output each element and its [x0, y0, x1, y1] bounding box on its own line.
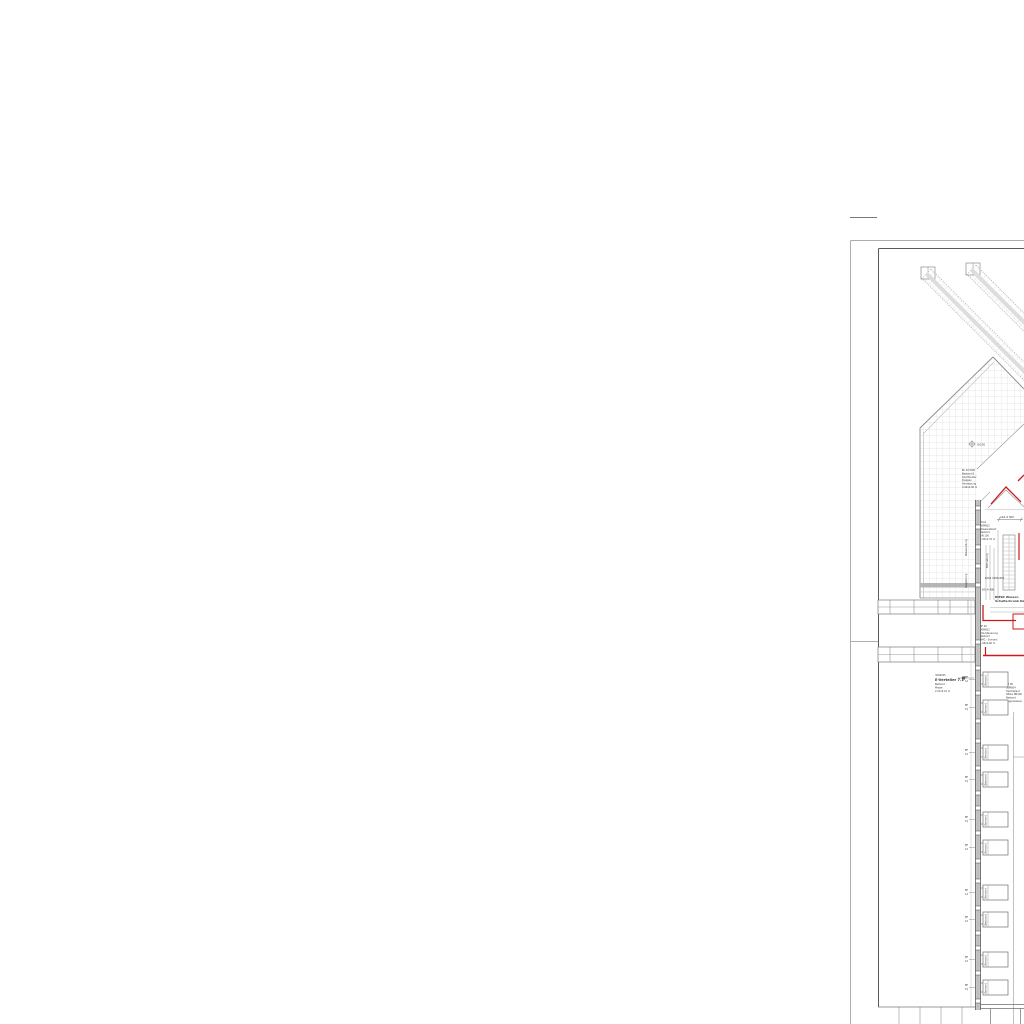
- svg-text:Schaltschrank Dach: Schaltschrank Dach: [995, 599, 1024, 603]
- level-label: 65.4 NN: [982, 588, 994, 592]
- svg-text:12: 12: [965, 820, 969, 823]
- svg-text:(Bestand): (Bestand): [985, 914, 988, 926]
- svg-text:12: 12: [965, 988, 969, 991]
- svg-text:1.94x2.76 m: 1.94x2.76 m: [980, 538, 996, 541]
- svg-text:(Fenster): (Fenster): [985, 955, 988, 966]
- svg-text:12: 12: [965, 920, 969, 923]
- level-dimension: +64.4 NN: [997, 515, 1023, 522]
- svg-text:12: 12: [965, 893, 969, 896]
- drawing-frame: [851, 241, 1024, 1024]
- central-roof-outlines: [977, 475, 1024, 510]
- window-symbol: (Fenster) BF 12: [965, 885, 1008, 900]
- bottom-wall-band: [878, 1007, 975, 1024]
- drawing-canvas: G026 BL 02 W06 Bestand 8 Dachfenster Kla…: [0, 0, 1024, 1024]
- riser-label-left-1: Wasserleitung: [965, 539, 968, 556]
- svg-text:BF: BF: [965, 776, 969, 779]
- wing-wall-lower: [878, 647, 975, 662]
- svg-text:12: 12: [965, 708, 969, 711]
- svg-text:3006025: 3006025: [935, 674, 946, 677]
- eave-band: [920, 583, 977, 588]
- riser-label-left-2: Steigleitung: [965, 573, 968, 588]
- svg-text:BF: BF: [965, 984, 969, 987]
- window-symbol: (Fenster) BF 12: [965, 700, 1008, 715]
- svg-text:(Fenster): (Fenster): [985, 703, 988, 714]
- svg-text:(Fenster): (Fenster): [985, 843, 988, 854]
- equipment-note: PCA1 30M602 Wasserablauf Bestand DN 100 …: [980, 521, 996, 541]
- red-cabinet-outline: [1013, 614, 1024, 629]
- svg-text:12: 12: [965, 680, 969, 683]
- red-cable-route: [983, 605, 1024, 629]
- e-verteiler-note: 3006025 E-Verteiler 7.1 Bestand Masse 2.…: [935, 674, 974, 693]
- window-symbol: (Fenster) BF 12: [965, 812, 1008, 827]
- svg-text:BF: BF: [965, 704, 969, 707]
- svg-text:(Bestand): (Bestand): [985, 774, 988, 786]
- svg-text:(Fenster): (Fenster): [985, 675, 988, 686]
- svg-text:12: 12: [965, 780, 969, 783]
- level-dim-label: +64.4 NN: [999, 515, 1014, 519]
- facade-reference-line: [1014, 712, 1024, 1024]
- svg-text:(Fenster): (Fenster): [985, 888, 988, 899]
- bottom-east-structure: [981, 1005, 1024, 1024]
- svg-text:(Fenster): (Fenster): [985, 983, 988, 994]
- riser-label-right: BSH Leitung: [986, 553, 989, 568]
- survey-point-label: G026: [977, 443, 985, 447]
- svg-text:12: 12: [965, 960, 969, 963]
- svg-text:0.94x2.00 m: 0.94x2.00 m: [962, 486, 978, 489]
- bmsr-note: BMSR Wasser- Schaltschrank Dach: [995, 595, 1024, 603]
- window-symbol: (Fenster) BF 12: [965, 980, 1008, 995]
- svg-text:(Fenster): (Fenster): [985, 748, 988, 759]
- floor-plan-svg: G026 BL 02 W06 Bestand 8 Dachfenster Kla…: [0, 0, 1024, 1024]
- red-junction-line: [983, 647, 1024, 656]
- window-symbol: (Fenster) BF 12: [965, 952, 1008, 967]
- duct-label: BA04 1950x650: [985, 577, 1005, 580]
- svg-text:1.96x0.60 m: 1.96x0.60 m: [980, 642, 996, 645]
- svg-text:E-Verteiler 7.1: E-Verteiler 7.1: [935, 678, 964, 682]
- svg-text:12: 12: [965, 753, 969, 756]
- window-row: (Fenster) BF 12 (Fenster) BF 12 (Fenster…: [965, 672, 1008, 995]
- svg-text:BF: BF: [965, 916, 969, 919]
- lka-note: BF 40 30M602 LKA-Steuerung Bestand BMC -…: [980, 625, 998, 645]
- svg-text:Regenwasser: Regenwasser: [1006, 700, 1022, 703]
- svg-text:BF: BF: [965, 956, 969, 959]
- svg-text:BF: BF: [965, 844, 969, 847]
- window-symbol: (Bestand) BF 12: [965, 912, 1008, 927]
- window-symbol: (Fenster) BF 12: [965, 745, 1008, 760]
- svg-text:12: 12: [965, 848, 969, 851]
- svg-text:BF: BF: [965, 749, 969, 752]
- svg-text:BF: BF: [965, 889, 969, 892]
- window-symbol: (Fenster) BF 12: [965, 840, 1008, 855]
- east-note: KE 06 30M604 Dachablauf Attika DN100 Bes…: [1006, 683, 1022, 703]
- window-symbol: (Fenster) BF 12: [965, 672, 1008, 687]
- svg-text:(Fenster): (Fenster): [985, 815, 988, 826]
- svg-text:BF: BF: [965, 816, 969, 819]
- wing-wall-upper: [878, 600, 975, 614]
- window-symbol: (Bestand) BF 12: [965, 772, 1008, 787]
- svg-text:BF: BF: [965, 676, 969, 679]
- svg-text:2.01x2.01 m: 2.01x2.01 m: [935, 690, 951, 693]
